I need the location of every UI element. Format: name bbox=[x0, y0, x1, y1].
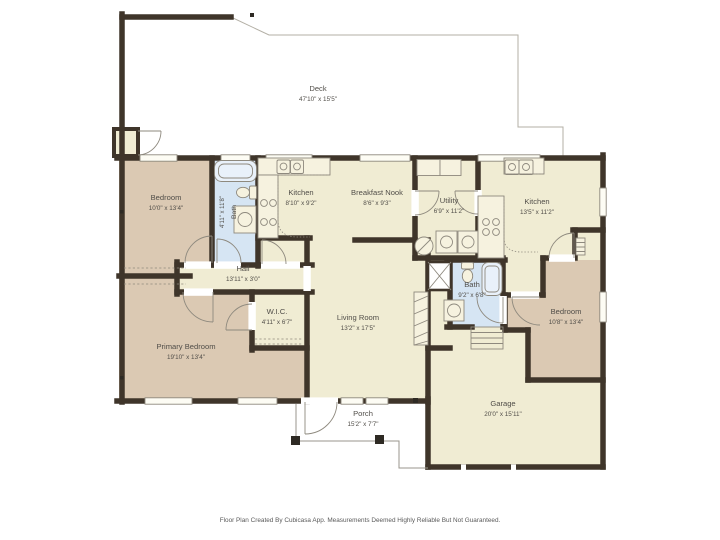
window bbox=[145, 398, 192, 404]
room-dims-kitchen1: 8'10" x 9'2" bbox=[285, 200, 316, 207]
room-dims-nook: 8'6" x 9'3" bbox=[363, 200, 391, 207]
porch-post bbox=[375, 435, 384, 444]
room-label-utility: Utility bbox=[440, 196, 459, 205]
garage-door-mark bbox=[461, 464, 466, 470]
room-label-bath1: Bath bbox=[231, 205, 238, 219]
deck-alcove bbox=[114, 129, 138, 156]
room-label-hall: Hall bbox=[236, 264, 249, 273]
window bbox=[600, 188, 606, 216]
wall-marker bbox=[413, 398, 418, 403]
bathtub-icon bbox=[215, 161, 257, 182]
window bbox=[366, 398, 388, 404]
room-dims-bedroom1: 10'0" x 13'4" bbox=[149, 205, 184, 212]
deck-area bbox=[122, 17, 563, 157]
porch-post bbox=[291, 436, 300, 445]
room-dims-bath2: 9'2" x 6'8" bbox=[458, 292, 486, 299]
room-label-living: Living Room bbox=[337, 313, 379, 322]
room-dims-deck: 47'10" x 15'5" bbox=[299, 96, 337, 103]
room-dims-living: 13'2" x 17'5" bbox=[341, 325, 376, 332]
fireplace-icon bbox=[414, 292, 428, 345]
washer-icon bbox=[436, 231, 457, 253]
door-arc-front bbox=[305, 402, 337, 434]
room-dims-bath1: 4'11" x 11'8" bbox=[220, 196, 226, 228]
room-dims-hall: 13'11" x 3'0" bbox=[226, 276, 260, 283]
toilet-icon bbox=[237, 186, 257, 199]
window bbox=[360, 155, 410, 161]
footer-disclaimer: Floor Plan Created By Cubicasa App. Meas… bbox=[220, 517, 501, 524]
window bbox=[140, 155, 177, 161]
window bbox=[238, 398, 277, 404]
room-label-deck: Deck bbox=[309, 84, 327, 93]
bedroom1-area bbox=[119, 158, 212, 276]
window bbox=[600, 292, 606, 322]
room-dims-bedroom2: 10'8" x 13'4" bbox=[549, 319, 584, 326]
room-dims-utility: 6'9" x 11'2" bbox=[434, 208, 465, 215]
room-dims-porch: 15'2" x 7'7" bbox=[347, 421, 378, 428]
sink-icon bbox=[444, 300, 464, 321]
room-dims-garage: 20'0" x 15'11" bbox=[484, 411, 522, 418]
room-label-kitchen2: Kitchen bbox=[524, 197, 549, 206]
room-label-porch: Porch bbox=[353, 409, 373, 418]
dryer-icon bbox=[458, 231, 478, 253]
room-dims-kitchen2: 13'5" x 11'2" bbox=[520, 209, 554, 216]
room-dims-wic: 4'11" x 6'7" bbox=[262, 319, 293, 326]
wall-marker bbox=[120, 210, 124, 214]
room-dims-primary: 19'10" x 13'4" bbox=[167, 354, 205, 361]
pantry-shelves-icon bbox=[576, 238, 585, 255]
water-heater-icon bbox=[428, 262, 451, 290]
room-label-primary: Primary Bedroom bbox=[156, 342, 215, 351]
utility-cabinets bbox=[417, 160, 461, 176]
wall-marker bbox=[250, 13, 254, 17]
bathtub-icon bbox=[482, 263, 502, 296]
room-label-bedroom1: Bedroom bbox=[151, 193, 182, 202]
room-label-bath2: Bath bbox=[464, 280, 480, 289]
room-label-wic: W.I.C. bbox=[267, 307, 288, 316]
room-label-garage: Garage bbox=[490, 399, 515, 408]
floor-plan-canvas: Deck 47'10" x 15'5" Bedroom 10'0" x 13'4… bbox=[0, 0, 720, 540]
room-label-kitchen1: Kitchen bbox=[288, 188, 313, 197]
wall-marker bbox=[120, 376, 124, 380]
room-label-bedroom2: Bedroom bbox=[551, 307, 582, 316]
floor-plan-page: Deck 47'10" x 15'5" Bedroom 10'0" x 13'4… bbox=[0, 0, 720, 540]
room-label-nook: Breakfast Nook bbox=[351, 188, 403, 197]
utility-sink-icon bbox=[415, 237, 433, 255]
garage-door-mark bbox=[511, 464, 516, 470]
window bbox=[341, 398, 363, 404]
